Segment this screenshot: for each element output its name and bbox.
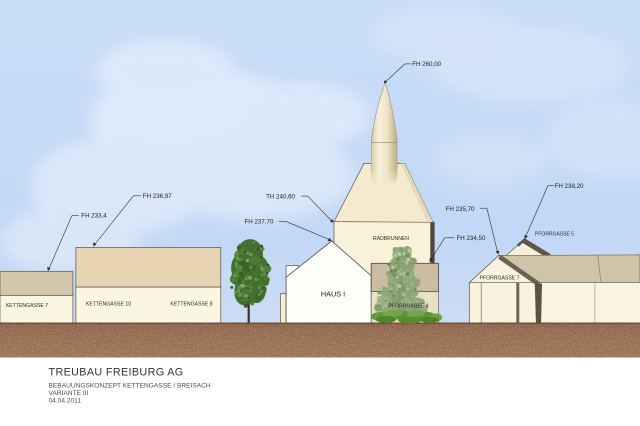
svg-text:FH 237,70: FH 237,70	[245, 219, 274, 226]
svg-text:BEBAUUNGSKONZEPT KETTENGASSE /: BEBAUUNGSKONZEPT KETTENGASSE / BREISACH	[49, 383, 211, 390]
svg-text:FH 260,00: FH 260,00	[412, 61, 441, 68]
svg-text:KETTENGASSE 10: KETTENGASSE 10	[86, 302, 131, 308]
svg-text:KETTENGASSE 8: KETTENGASSE 8	[170, 302, 212, 308]
svg-text:HAUS I: HAUS I	[321, 289, 345, 298]
svg-text:TH 240,60: TH 240,60	[266, 193, 295, 200]
svg-text:PFORRGASSE 7: PFORRGASSE 7	[480, 276, 520, 282]
svg-text:KETTENGASSE 7: KETTENGASSE 7	[6, 303, 48, 309]
svg-text:FH 234,50: FH 234,50	[457, 235, 486, 242]
svg-text:FH 233,4: FH 233,4	[81, 213, 107, 220]
svg-text:PFORRGASSE 5: PFORRGASSE 5	[535, 231, 574, 237]
svg-text:FH 235,70: FH 235,70	[446, 206, 475, 213]
svg-text:PFORRGASSE 4: PFORRGASSE 4	[389, 303, 429, 309]
svg-text:TREUBAU FREIBURG AG: TREUBAU FREIBURG AG	[49, 367, 184, 379]
svg-text:FH 238,20: FH 238,20	[555, 183, 584, 190]
svg-text:VARIANTE III: VARIANTE III	[49, 390, 89, 397]
svg-text:RADBRUNNEN: RADBRUNNEN	[373, 236, 409, 242]
svg-text:FH 236,97: FH 236,97	[143, 193, 172, 200]
svg-text:04.04.2011: 04.04.2011	[49, 397, 82, 404]
